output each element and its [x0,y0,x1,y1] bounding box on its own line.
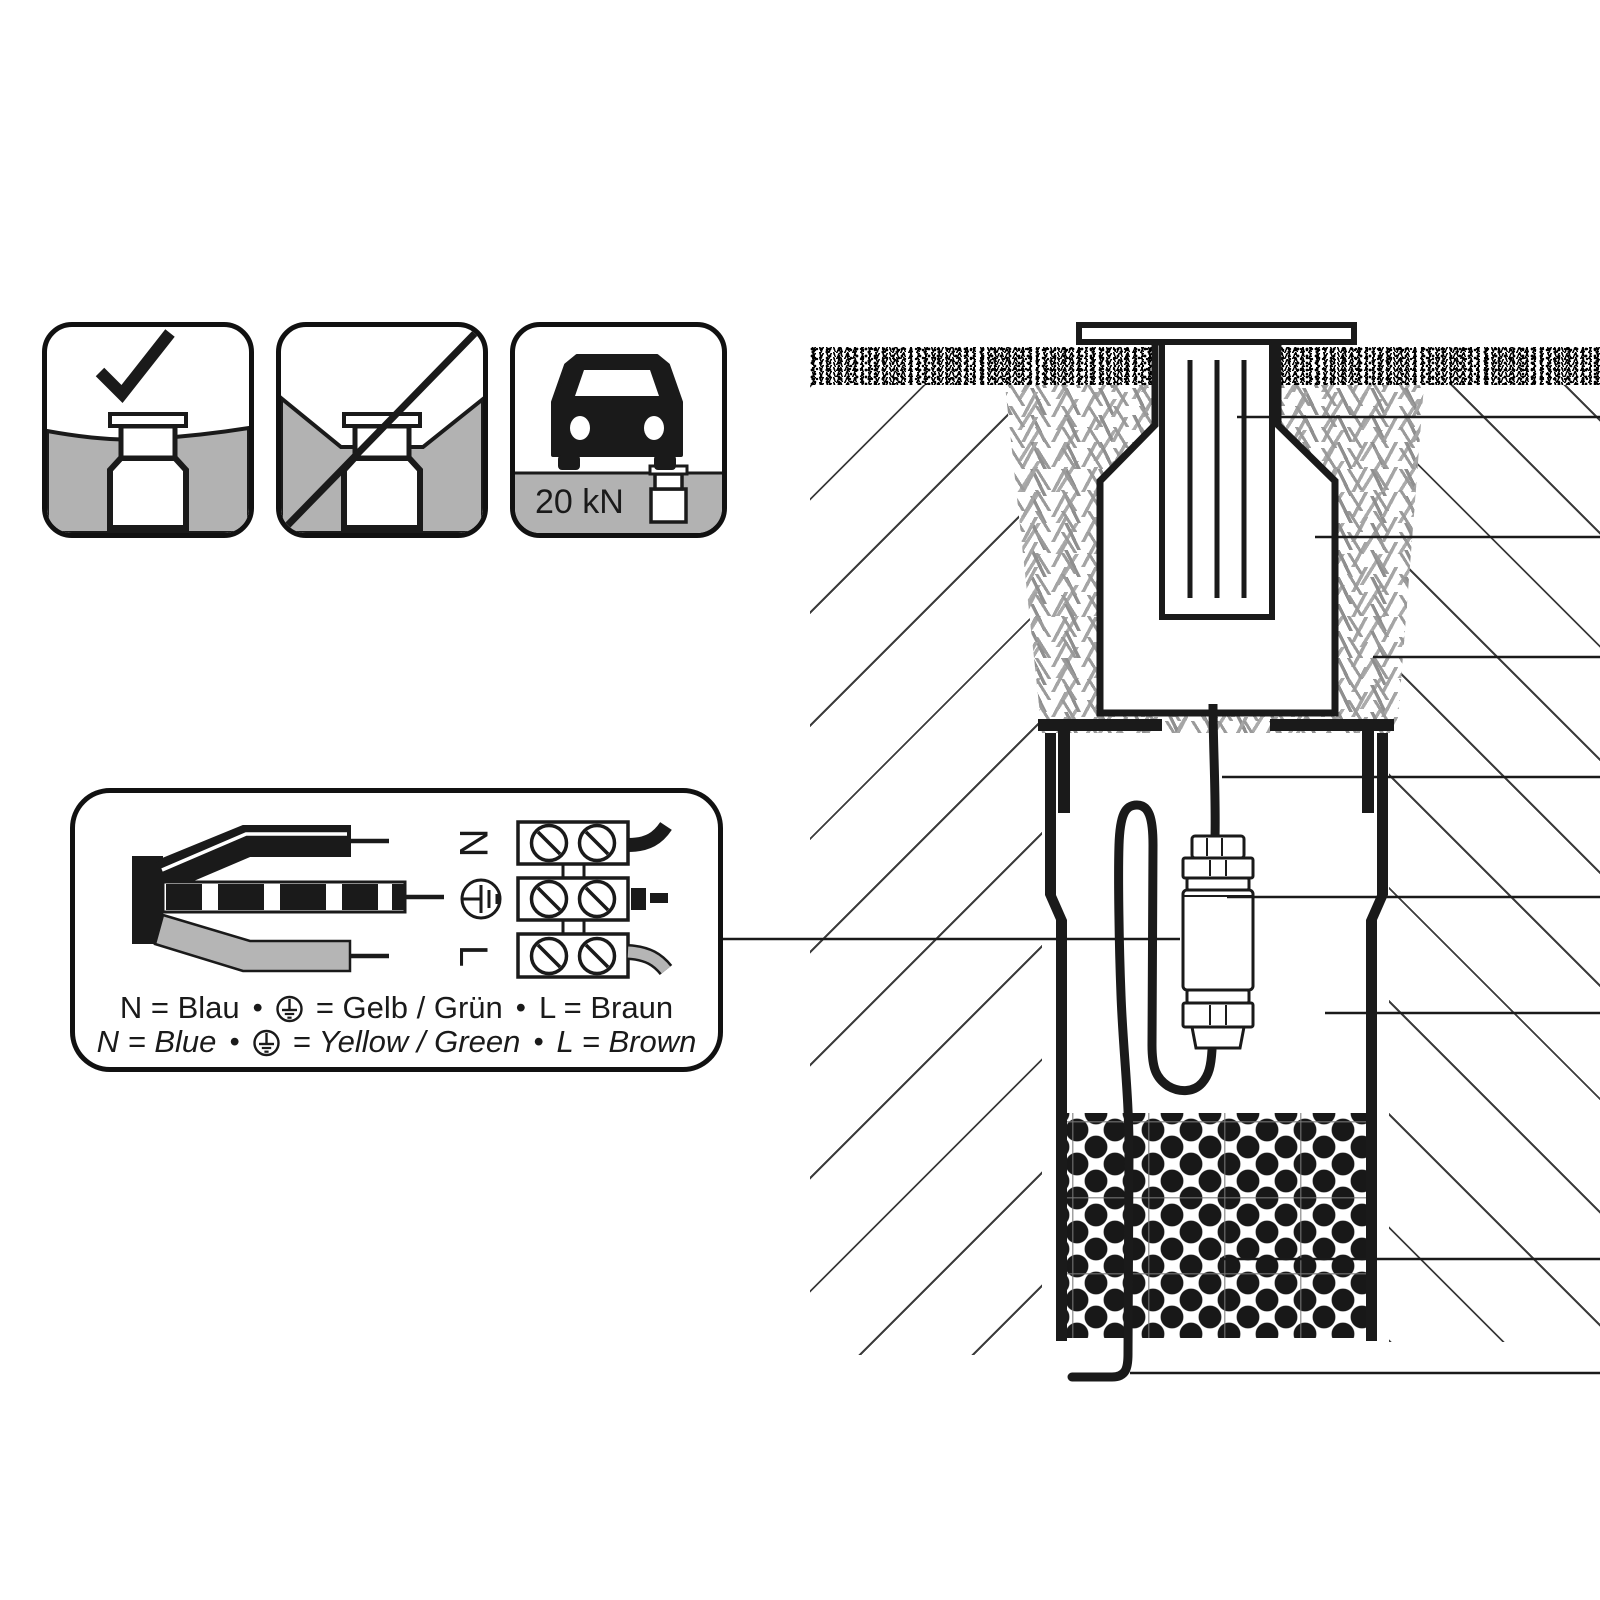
earth-symbol-icon [462,880,500,918]
bullet: • [533,1026,543,1059]
tube-rim-brackets [1038,719,1394,813]
bullet: • [253,992,263,1025]
connector-facets [1183,838,1253,1025]
outgoing-wire-pe-tip [650,893,668,903]
caption-pe-de: = Gelb / Grün [316,990,503,1026]
terminal-link [563,920,584,934]
caption-l-en: L = Brown [556,1024,696,1060]
car-wheel-left [558,455,580,470]
wire-color-caption-de: N = Blau • = Gelb / Grün • L = Braun [75,990,718,1026]
installation-instruction-sheet: 20 kN [0,0,1600,1600]
rim-bracket-left-leg [1058,731,1070,813]
terminal-label-l: L [451,945,495,967]
buried-luminaire [650,466,687,522]
connector-body [1183,890,1253,990]
connector-bottom-nut [1183,1003,1253,1027]
terminal-link [563,864,584,878]
caption-pe-en: = Yellow / Green [293,1024,521,1060]
caption-n-de: N = Blau [120,990,240,1026]
luminaire-flange [110,414,186,426]
earth-symbol-icon [276,993,303,1024]
rim-bracket-right-leg [1362,731,1374,813]
wire-color-caption-en: N = Blue • = Yellow / Green • L = Brown [75,1024,718,1060]
connector-top-cap [1192,836,1244,858]
luminaire-neck [655,474,682,489]
car-headlight-right [644,416,664,440]
luminaire-body [651,489,686,522]
caption-n-en: N = Blue [97,1024,217,1060]
outgoing-wire-n [628,826,666,845]
load-rating-label: 20 kN [535,483,624,521]
icon-correct-installation [42,322,254,538]
earth-hatching-left [810,385,1044,1355]
gravel-drainage-texture [1058,1113,1377,1338]
earth-symbol-icon [253,1027,280,1058]
connector-bottom-ring [1187,990,1249,1003]
connector-bottom-cap [1192,1027,1244,1048]
icon-incorrect-installation [276,322,488,538]
outgoing-wire-pe [631,888,646,910]
luminaire-body [110,458,186,528]
cable-connector [1183,836,1253,1048]
sand-backfill-texture [1005,385,1424,733]
wire-earth [163,882,444,912]
incorrect-installation-pictogram [281,327,483,533]
wire-line [155,915,389,971]
car-icon [553,356,681,470]
bullet: • [229,1026,239,1059]
connector-top-ring [1187,878,1249,890]
check-icon [100,333,170,394]
icon-load-rating: 20 kN [510,322,727,538]
terminal-block: N L [451,822,668,977]
bullet: • [516,992,526,1025]
wiring-legend-box: N L N = Blau • [70,788,723,1072]
caption-l-de: L = Braun [539,990,673,1026]
luminaire-neck [121,426,175,458]
luminaire-body [344,458,420,528]
earth-hatching-right [1389,385,1600,1342]
terminal-label-n: N [451,829,495,858]
car-headlight-left [570,416,590,440]
cover-flange [1079,325,1354,342]
connector-top-nut [1183,858,1253,878]
surface-layer-texture [810,347,1600,385]
car-windshield [575,370,659,396]
drive-over-pictogram: 20 kN [515,327,722,533]
car-wheel-right [654,455,676,470]
correct-installation-pictogram [47,327,249,533]
